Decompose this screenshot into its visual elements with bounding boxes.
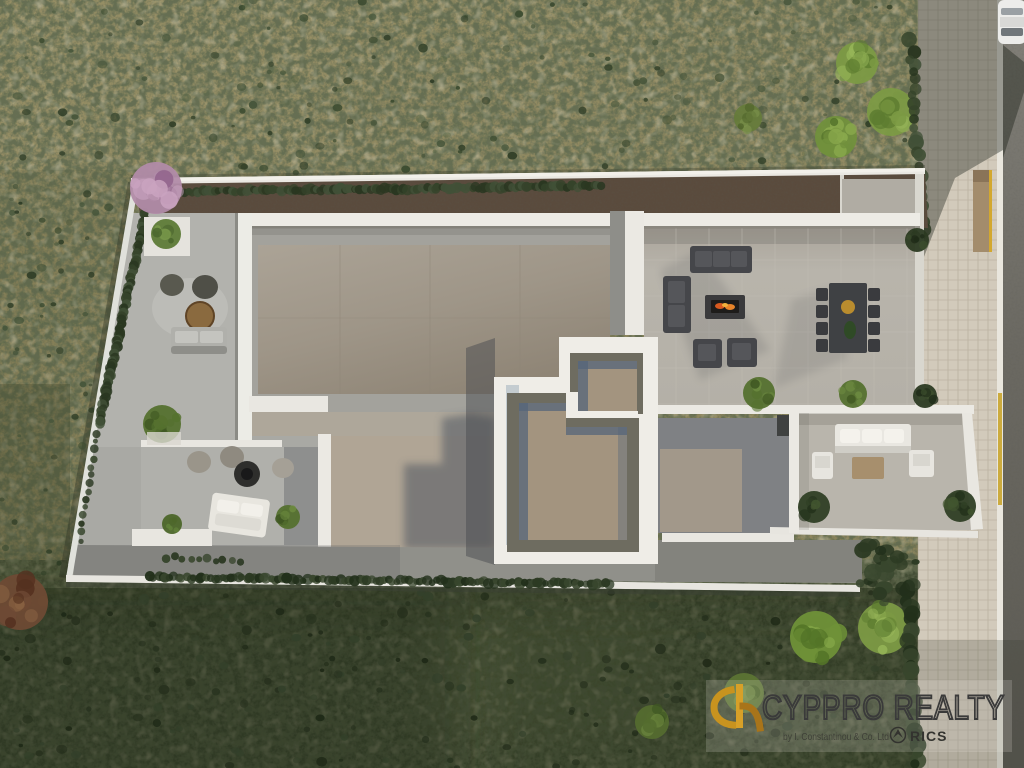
svg-text:RICS: RICS bbox=[910, 728, 947, 744]
svg-text:CYPPRO REALTY: CYPPRO REALTY bbox=[762, 689, 1005, 727]
svg-text:by I. Constantinou & Co. Ltd: by I. Constantinou & Co. Ltd bbox=[783, 731, 889, 743]
